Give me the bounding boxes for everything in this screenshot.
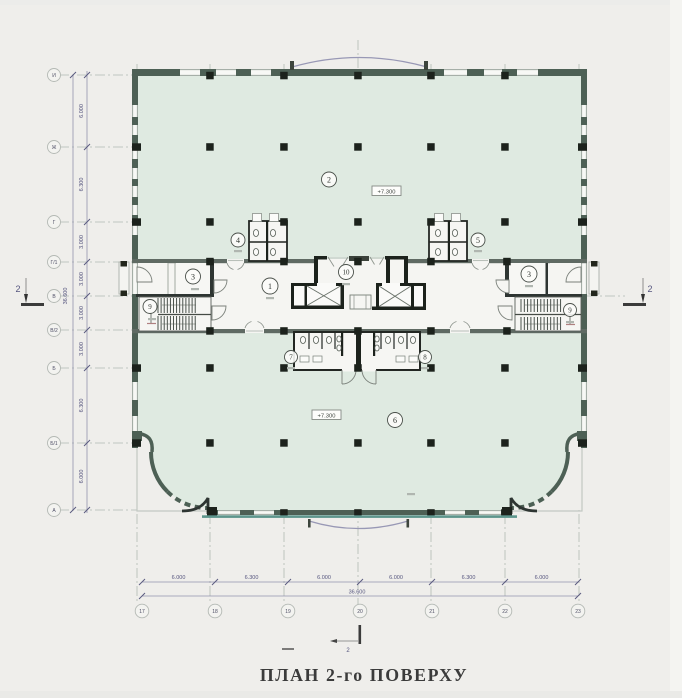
svg-text:6.000: 6.000 <box>317 575 331 581</box>
svg-text:9: 9 <box>568 307 572 315</box>
svg-text:Б/1: Б/1 <box>50 441 58 447</box>
svg-text:6: 6 <box>393 416 397 425</box>
svg-text:7: 7 <box>289 354 293 362</box>
svg-text:36.600: 36.600 <box>63 288 69 305</box>
svg-text:Ж: Ж <box>52 145 57 151</box>
svg-text:3.000: 3.000 <box>79 235 85 249</box>
svg-text:6.300: 6.300 <box>245 575 259 581</box>
svg-text:2: 2 <box>327 175 331 184</box>
svg-text:18: 18 <box>212 609 218 615</box>
svg-text:3: 3 <box>191 272 195 281</box>
svg-text:8: 8 <box>423 354 427 362</box>
svg-text:6.000: 6.000 <box>79 104 85 118</box>
svg-text:19: 19 <box>285 609 291 615</box>
svg-text:Г/1: Г/1 <box>51 260 58 266</box>
svg-text:3.000: 3.000 <box>79 272 85 286</box>
svg-text:И: И <box>52 73 56 79</box>
svg-text:В/2: В/2 <box>50 328 58 334</box>
svg-text:17: 17 <box>139 609 145 615</box>
svg-text:3: 3 <box>527 270 531 279</box>
svg-text:6.000: 6.000 <box>535 575 549 581</box>
svg-text:6.300: 6.300 <box>79 399 85 413</box>
svg-text:9: 9 <box>148 303 152 311</box>
svg-text:6.000: 6.000 <box>79 470 85 484</box>
svg-text:3.000: 3.000 <box>79 342 85 356</box>
svg-text:2: 2 <box>15 284 20 294</box>
svg-text:20: 20 <box>357 609 363 615</box>
svg-text:6.000: 6.000 <box>172 575 186 581</box>
svg-text:+7.300: +7.300 <box>318 413 336 419</box>
svg-text:6.300: 6.300 <box>462 575 476 581</box>
svg-text:6.000: 6.000 <box>389 575 403 581</box>
svg-text:6.300: 6.300 <box>79 178 85 192</box>
svg-text:1: 1 <box>268 282 272 291</box>
svg-text:ПЛАН 2-го ПОВЕРХУ: ПЛАН 2-го ПОВЕРХУ <box>260 665 468 685</box>
svg-text:10: 10 <box>343 269 351 277</box>
svg-text:36.600: 36.600 <box>349 590 366 596</box>
svg-text:4: 4 <box>236 236 240 245</box>
svg-text:21: 21 <box>429 609 435 615</box>
svg-text:5: 5 <box>476 236 480 245</box>
svg-text:23: 23 <box>575 609 581 615</box>
svg-text:2: 2 <box>647 284 652 294</box>
svg-text:+7.300: +7.300 <box>378 189 396 195</box>
svg-text:3.000: 3.000 <box>79 306 85 320</box>
svg-text:22: 22 <box>502 609 508 615</box>
svg-text:Г: Г <box>53 220 56 226</box>
